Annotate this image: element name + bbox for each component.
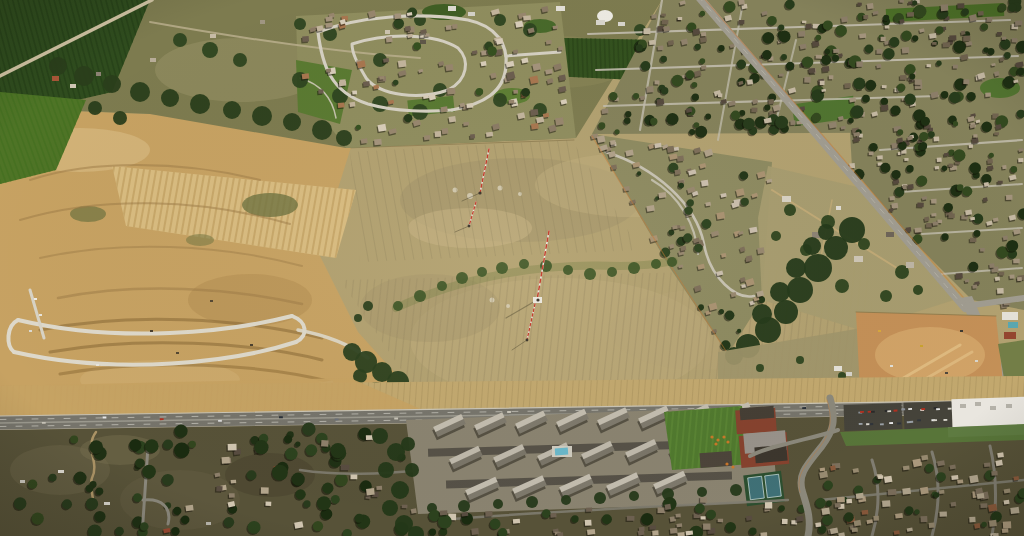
aerial-photograph — [0, 0, 1024, 536]
photo-vignette — [0, 0, 1024, 536]
aerial-photo-canvas — [0, 0, 1024, 536]
